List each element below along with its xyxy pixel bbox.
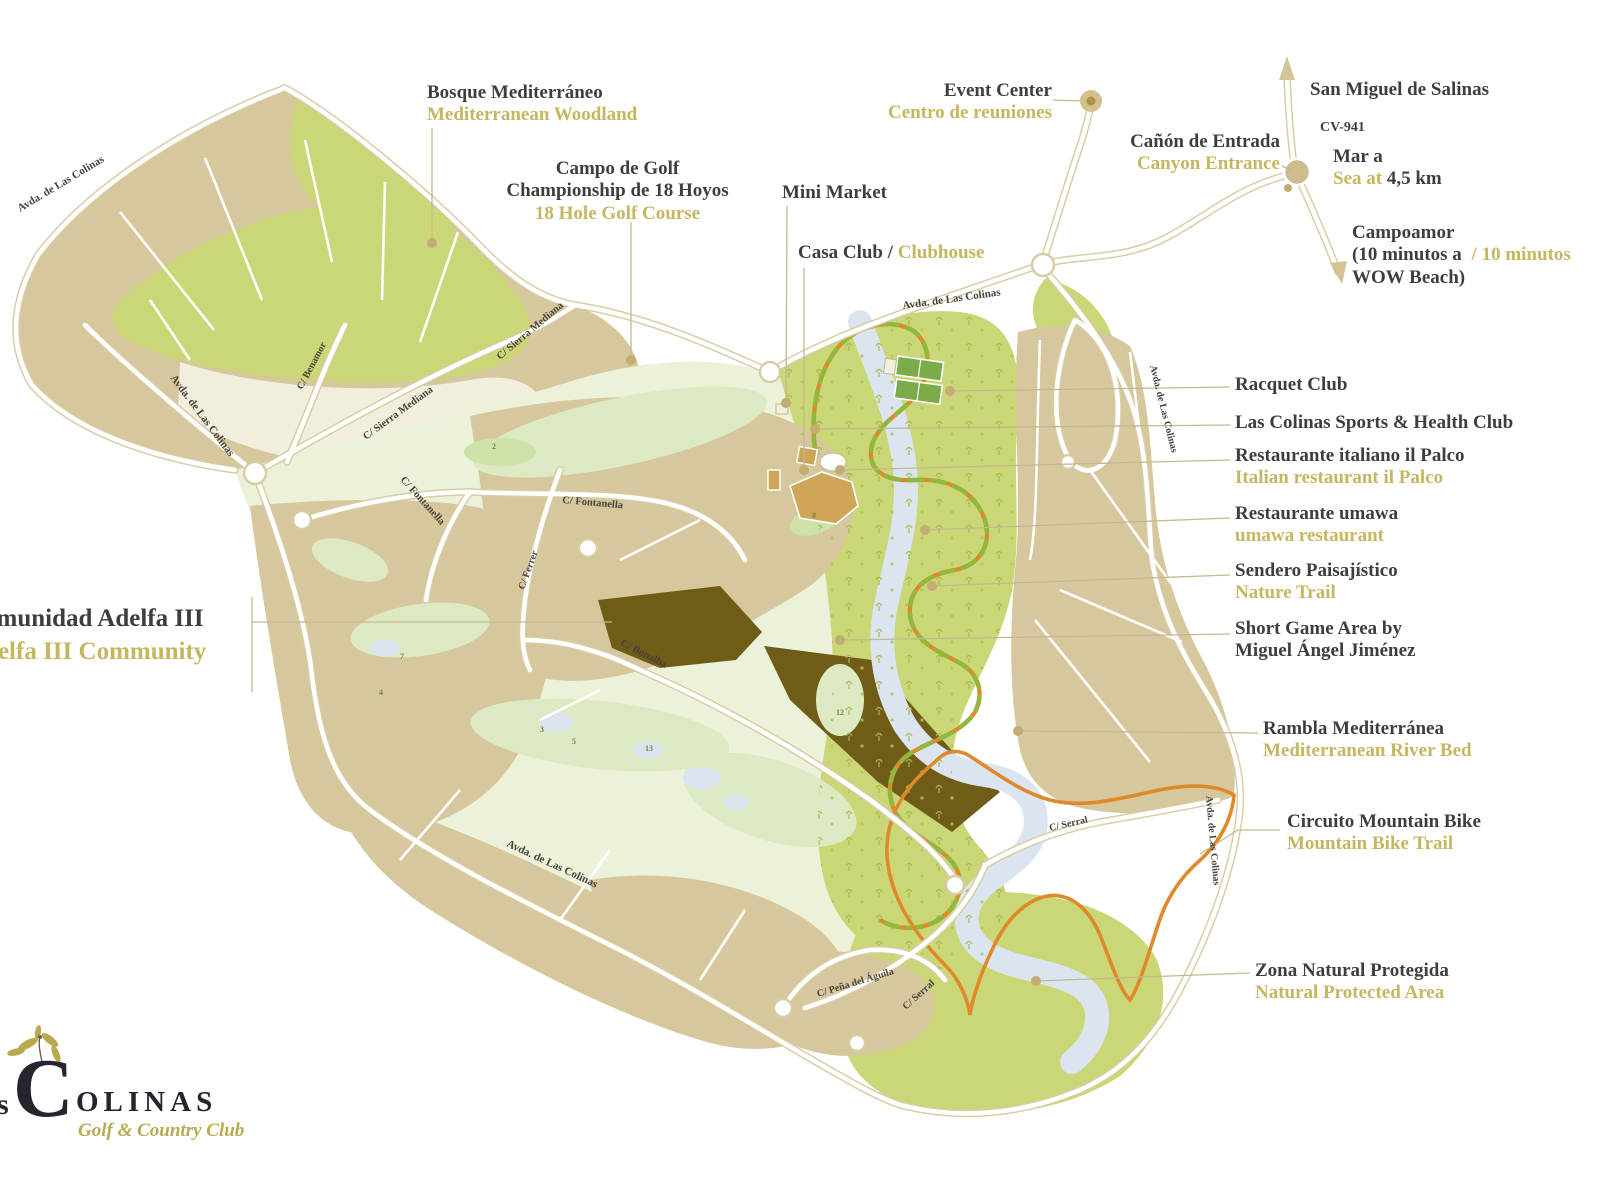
- logo-partial-letter: s: [0, 1088, 13, 1122]
- label-line2: Championship de 18 Hoyos: [450, 180, 785, 202]
- label-line2: Miguel Ángel Jiménez: [1235, 640, 1415, 662]
- label-subtitle: Italian restaurant il Palco: [1235, 467, 1465, 489]
- label-short-game-area: Short Game Area by Miguel Ángel Jiménez: [1235, 618, 1415, 663]
- label-line1: Mar a: [1333, 146, 1442, 168]
- label-gold: Sea at: [1333, 168, 1382, 189]
- label-subtitle: Centro de reuniones: [880, 102, 1052, 124]
- event-center-marker: [1080, 90, 1102, 112]
- label-subtitle: Mediterranean River Bed: [1263, 740, 1472, 762]
- label-line2-gold: / 10 minutos: [1472, 244, 1571, 265]
- label-subtitle: Clubhouse: [898, 242, 985, 263]
- label-subtitle: Mountain Bike Trail: [1287, 833, 1481, 855]
- hole-number: 5: [572, 737, 576, 746]
- label-restaurante-umawa: Restaurante umawa umawa restaurant: [1235, 503, 1398, 548]
- label-title: Event Center: [880, 80, 1052, 102]
- label-campoamor: Campoamor (10 minutos a / 10 minutos WOW…: [1352, 222, 1571, 289]
- resort-map-page: Avda. de Las Colinas Avda. de Las Colina…: [0, 0, 1600, 1200]
- label-subtitle: Mediterranean Woodland: [427, 104, 637, 126]
- label-subtitle: Canyon Entrance: [1055, 153, 1280, 175]
- label-line1: Campoamor: [1352, 222, 1571, 244]
- label-casa-club: Casa Club / Clubhouse: [798, 242, 984, 264]
- label-bosque-mediterraneo: Bosque Mediterráneo Mediterranean Woodla…: [427, 82, 637, 127]
- label-title: Casa Club /: [798, 242, 893, 263]
- hole-number: 3: [540, 725, 544, 734]
- east-parcels-area: [1011, 326, 1235, 814]
- arrow-north-icon: [1279, 56, 1295, 80]
- label-racquet-club: Racquet Club: [1235, 374, 1347, 396]
- label-subtitle: Nature Trail: [1235, 582, 1398, 604]
- label-line3: WOW Beach): [1352, 267, 1571, 289]
- label-san-miguel: San Miguel de Salinas: [1310, 79, 1489, 101]
- label-title: Racquet Club: [1235, 374, 1347, 396]
- label-sendero-paisajistico: Sendero Paisajístico Nature Trail: [1235, 560, 1398, 605]
- label-title: Las Colinas Sports & Health Club: [1235, 412, 1513, 434]
- hole-number: 7: [400, 652, 404, 661]
- hole-number: 8: [812, 511, 816, 520]
- label-subtitle: umawa restaurant: [1235, 525, 1398, 547]
- label-title: Circuito Mountain Bike: [1287, 811, 1481, 833]
- hole-number: 2: [492, 442, 496, 451]
- arrow-south-icon: [1330, 261, 1347, 284]
- label-rambla-mediterranea: Rambla Mediterránea Mediterranean River …: [1263, 718, 1472, 763]
- label-circuito-mountain-bike: Circuito Mountain Bike Mountain Bike Tra…: [1287, 811, 1481, 856]
- logo-wordmark: OLINAS: [76, 1086, 217, 1119]
- label-event-center: Event Center Centro de reuniones: [880, 80, 1052, 125]
- hole-number: 12: [836, 708, 844, 717]
- label-title: Mini Market: [782, 182, 887, 204]
- label-campo-de-golf: Campo de Golf Championship de 18 Hoyos 1…: [450, 158, 785, 225]
- street-label-avda-4: Avda. de Las Colinas: [1147, 364, 1179, 454]
- label-subtitle: Adelfa III Community: [0, 636, 206, 669]
- label-title: Short Game Area by: [1235, 618, 1415, 640]
- label-title: Comunidad Adelfa III: [0, 603, 206, 636]
- label-sea-distance: Mar a Sea at 4,5 km: [1333, 146, 1442, 191]
- entrance-roundabout: [1284, 159, 1310, 185]
- label-line2-dark: (10 minutos a: [1352, 244, 1462, 265]
- label-title: Restaurante umawa: [1235, 503, 1398, 525]
- hole-number: 13: [645, 744, 653, 753]
- label-cv941: CV-941: [1320, 120, 1365, 137]
- label-subtitle: 18 Hole Golf Course: [450, 203, 785, 225]
- label-title: Cañón de Entrada: [1055, 131, 1280, 153]
- street-label-avda-3: Avda. de Las Colinas: [902, 286, 1002, 312]
- logo-initial-c: C: [13, 1040, 74, 1137]
- label-title: Campo de Golf: [450, 158, 785, 180]
- las-colinas-logo: s C OLINAS Golf & Country Club: [0, 1028, 260, 1178]
- label-title: Zona Natural Protegida: [1255, 960, 1449, 982]
- label-mini-market: Mini Market: [782, 182, 887, 204]
- label-comunidad-adelfa: Comunidad Adelfa III Adelfa III Communit…: [0, 603, 206, 668]
- label-zona-natural-protegida: Zona Natural Protegida Natural Protected…: [1255, 960, 1449, 1005]
- label-restaurante-il-palco: Restaurante italiano il Palco Italian re…: [1235, 445, 1465, 490]
- label-sports-health-club: Las Colinas Sports & Health Club: [1235, 412, 1513, 434]
- hole-number: 4: [379, 688, 383, 697]
- label-title: CV-941: [1320, 120, 1365, 135]
- label-dark: 4,5 km: [1387, 168, 1442, 189]
- label-title: Restaurante italiano il Palco: [1235, 445, 1465, 467]
- label-title: San Miguel de Salinas: [1310, 79, 1489, 100]
- label-title: Sendero Paisajístico: [1235, 560, 1398, 582]
- label-canyon-entrance: Cañón de Entrada Canyon Entrance: [1055, 131, 1280, 176]
- label-title: Bosque Mediterráneo: [427, 82, 637, 104]
- label-subtitle: Natural Protected Area: [1255, 982, 1449, 1004]
- logo-tagline: Golf & Country Club: [78, 1120, 244, 1142]
- label-title: Rambla Mediterránea: [1263, 718, 1472, 740]
